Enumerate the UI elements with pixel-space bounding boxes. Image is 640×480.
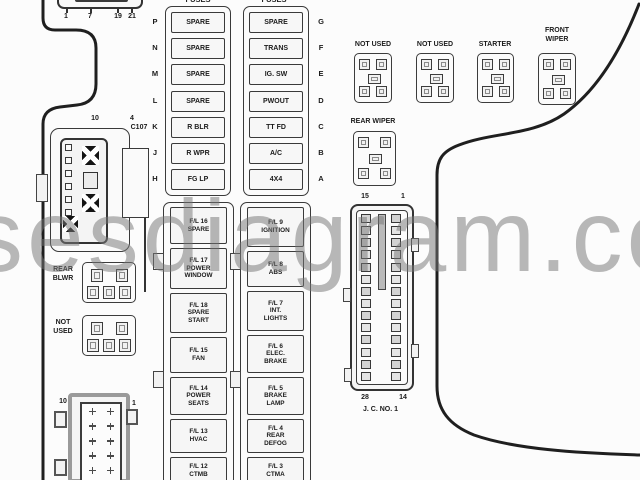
connector-pin [543, 59, 554, 70]
connector-pin [361, 226, 371, 235]
connector-pin [391, 275, 401, 284]
connector-pin [91, 269, 103, 282]
connector-side-tab [54, 459, 67, 476]
fuse-letter: N [149, 43, 161, 52]
connector-pin [391, 263, 401, 272]
connector-pin [87, 339, 99, 352]
fusible-link-box: F/L 13 HVAC [170, 419, 227, 453]
fuse-box: SPARE [171, 64, 225, 85]
column-tab [230, 253, 241, 270]
relay-label: STARTER [467, 40, 523, 49]
connector-pin [119, 286, 131, 299]
c107-side-block [122, 148, 149, 218]
relay-label: REAR WIPER [340, 117, 406, 126]
relay-label: FRONT WIPER [529, 26, 585, 44]
top-connector-pin-label: 1 [59, 13, 73, 20]
connector-pin [361, 335, 371, 344]
c107-pin [83, 172, 98, 189]
fuses-header: FUSES [243, 0, 305, 4]
bottom-connector-pin-column [107, 408, 114, 474]
fuse-box: SPARE [249, 12, 303, 33]
bottom-connector-inner [80, 402, 122, 480]
fusible-link-box: F/L 6 ELEC. BRAKE [247, 335, 304, 373]
relay-block-not-used [354, 53, 392, 103]
connector-pin [361, 348, 371, 357]
c107-label: C107 [124, 124, 154, 131]
connector-pin [103, 339, 115, 352]
fusible-link-box: F/L 12 CTMB [170, 457, 227, 480]
top-connector-bar [75, 0, 128, 2]
connector-pin [438, 86, 449, 97]
fuse-box: 4X4 [249, 169, 303, 190]
connector-pin [119, 339, 131, 352]
fuse-letter: P [149, 17, 161, 26]
fusible-link-box: F/L 15 FAN [170, 337, 227, 373]
column-tab [153, 253, 164, 270]
fuse-box-diagram: 1 7 19 21 FUSES FUSES P SPARE N SPARE M … [0, 0, 640, 480]
connector-side-tab [126, 409, 138, 425]
connector-pin [361, 238, 371, 247]
c107-pin [63, 216, 78, 232]
c107-side-tab [36, 174, 48, 202]
connector-pin [358, 137, 369, 148]
relay-label: NOT USED [407, 40, 463, 49]
connector-pin [361, 311, 371, 320]
fusible-link-box: F/L 4 REAR DEFOG [247, 419, 304, 453]
connector-pin [89, 408, 96, 415]
connector-pin [361, 263, 371, 272]
connector-pin [359, 86, 370, 97]
connector-pin [438, 59, 449, 70]
relay-block-front-wiper [538, 53, 576, 105]
fuse-letter: B [315, 148, 327, 157]
top-connector-pin-label: 21 [124, 13, 140, 20]
fuse-letter: M [149, 69, 161, 78]
column-tab [230, 371, 241, 388]
fusible-link-box: F/L 5 BRAKE LAMP [247, 377, 304, 415]
connector-pin [361, 287, 371, 296]
fuse-letter: G [315, 17, 327, 26]
connector-pin [430, 74, 443, 84]
fuse-box: SPARE [171, 12, 225, 33]
relay-block-not-used [82, 315, 136, 356]
connector-pin [361, 250, 371, 259]
connector-pin [116, 269, 128, 282]
jc-side-tab [343, 288, 351, 302]
connector-pin [107, 408, 114, 415]
connector-pin [116, 322, 128, 335]
fuse-box: PWOUT [249, 91, 303, 112]
connector-pin [376, 59, 387, 70]
connector-pin [89, 423, 96, 430]
fuse-box: TT FD [249, 117, 303, 138]
connector-pin [107, 438, 114, 445]
jc-pin-column [361, 214, 371, 381]
fusible-link-box: F/L 16 SPARE [170, 207, 227, 244]
fusible-link-box: F/L 8 ABS [247, 251, 304, 287]
c107-pin-label: 4 [126, 115, 138, 122]
connector-pin [391, 238, 401, 247]
fuse-letter: J [149, 148, 161, 157]
fuse-box: FG LP [171, 169, 225, 190]
connector-pin [391, 323, 401, 332]
connector-pin [89, 438, 96, 445]
connector-pin [65, 144, 72, 151]
fuse-box: TRANS [249, 38, 303, 59]
jc-label: J. C. NO. 1 [363, 406, 435, 413]
fusible-link-box: F/L 7 INT. LIGHTS [247, 291, 304, 331]
jc-center-bar [378, 214, 386, 290]
connector-pin [89, 452, 96, 459]
connector-pin [107, 452, 114, 459]
c107-pin [82, 146, 99, 165]
fuse-box: A/C [249, 143, 303, 164]
connector-pin [543, 88, 554, 99]
fuse-box: R BLR [171, 117, 225, 138]
top-connector-pin-label: 7 [83, 13, 97, 20]
connector-pin [91, 322, 103, 335]
fuses-header: FUSES [167, 0, 229, 4]
fuse-letter: A [315, 174, 327, 183]
connector-pin [380, 168, 391, 179]
connector-pin [391, 226, 401, 235]
c107-pin-label: 10 [88, 115, 102, 122]
connector-pin [499, 59, 510, 70]
connector-pin [380, 137, 391, 148]
connector-pin [107, 423, 114, 430]
relay-block-starter [477, 53, 514, 103]
relay-block-rear-blwr [82, 262, 136, 303]
connector-pin [421, 59, 432, 70]
connector-pin [87, 286, 99, 299]
connector-pin [491, 74, 504, 84]
connector-pin [421, 86, 432, 97]
connector-pin [107, 467, 114, 474]
connector-pin [391, 372, 401, 381]
fusible-link-box: F/L 14 POWER SEATS [170, 377, 227, 415]
fuse-letter: D [315, 96, 327, 105]
connector-pin [361, 275, 371, 284]
fuse-letter: E [315, 69, 327, 78]
fuse-box: R WPR [171, 143, 225, 164]
connector-pin [560, 59, 571, 70]
fusible-link-box: F/L 18 SPARE START [170, 293, 227, 333]
connector-pin [391, 214, 401, 223]
connector-pin [391, 311, 401, 320]
connector-pin [391, 299, 401, 308]
connector-pin [482, 86, 493, 97]
connector-pin [65, 209, 72, 216]
fuse-letter: H [149, 174, 161, 183]
connector-pin [552, 75, 565, 85]
relay-label: REAR BLWR [46, 265, 80, 283]
connector-pin [368, 74, 381, 84]
connector-pin [499, 86, 510, 97]
fusible-link-box: F/L 17 POWER WINDOW [170, 248, 227, 289]
jc-side-tab [344, 368, 352, 382]
connector-pin [376, 86, 387, 97]
connector-pin [369, 154, 382, 164]
connector-pin [361, 214, 371, 223]
connector-pin [391, 250, 401, 259]
c107-pin [82, 194, 99, 212]
connector-pin [65, 157, 72, 164]
connector-pin [482, 59, 493, 70]
fuse-letter: C [315, 122, 327, 131]
connector-side-tab [54, 411, 67, 428]
connector-pin [560, 88, 571, 99]
jc-pin-label: 14 [395, 394, 411, 401]
connector-pin [358, 168, 369, 179]
fusible-link-box: F/L 3 CTMA [247, 457, 304, 480]
column-tab [153, 371, 164, 388]
bottom-connector-pin-column [89, 408, 96, 474]
connector-pin [103, 286, 115, 299]
connector-pin [65, 196, 72, 203]
connector-pin [391, 360, 401, 369]
connector-pin [361, 299, 371, 308]
fusible-link-box: F/L 9 IGNITION [247, 207, 304, 247]
jc-pin-label: 28 [357, 394, 373, 401]
fuse-box: IG. SW [249, 64, 303, 85]
connector-pin [391, 348, 401, 357]
c107-pin-column [65, 144, 72, 216]
fuse-letter: L [149, 96, 161, 105]
fuse-letter: F [315, 43, 327, 52]
connector-pin [65, 170, 72, 177]
connector-pin [361, 372, 371, 381]
connector-pin [391, 335, 401, 344]
connector-pin [89, 467, 96, 474]
connector-pin [359, 59, 370, 70]
jc-pin-column [391, 214, 401, 381]
jc-pin-label: 15 [357, 193, 373, 200]
fuse-box: SPARE [171, 38, 225, 59]
jc-pin-label: 1 [396, 193, 410, 200]
connector-pin [391, 287, 401, 296]
relay-block-rear-wiper [353, 131, 396, 186]
fuse-box: SPARE [171, 91, 225, 112]
connector-pin [361, 323, 371, 332]
connector-pin [65, 183, 72, 190]
relay-block-not-used [416, 53, 454, 103]
jc-side-tab [411, 238, 419, 252]
relay-label: NOT USED [345, 40, 401, 49]
relay-label: NOT USED [46, 318, 80, 336]
connector-pin [361, 360, 371, 369]
jc-side-tab [411, 344, 419, 358]
